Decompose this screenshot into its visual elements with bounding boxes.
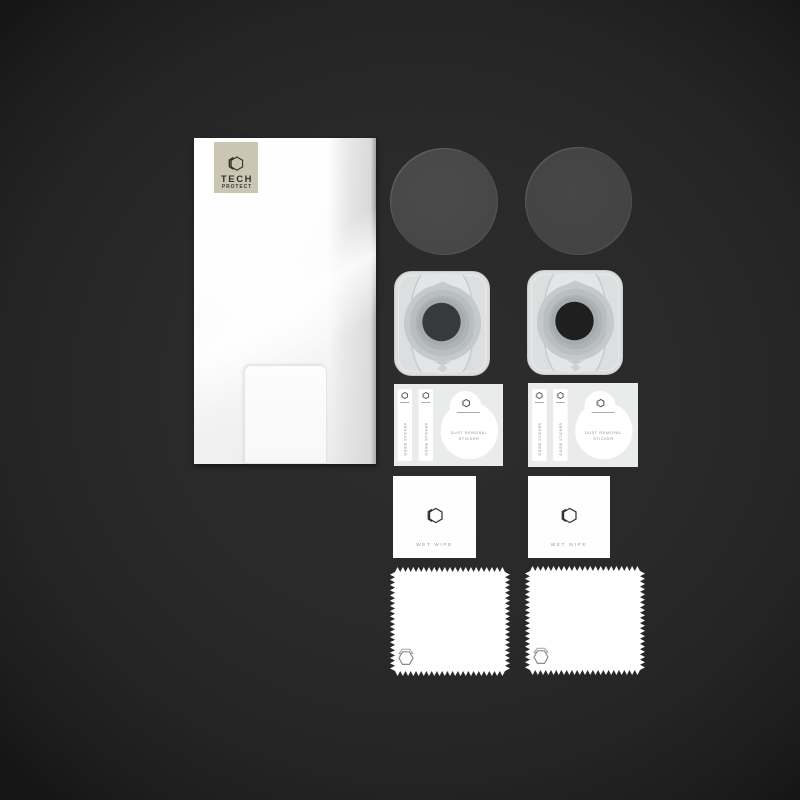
svg-text:GUIDE STICKER: GUIDE STICKER xyxy=(403,423,407,456)
svg-text:DUST REMOVAL: DUST REMOVAL xyxy=(585,431,622,435)
svg-text:STICKER: STICKER xyxy=(459,437,480,441)
svg-text:GUIDE STICKER: GUIDE STICKER xyxy=(538,423,542,456)
svg-text:GUIDE STICKER: GUIDE STICKER xyxy=(425,423,429,456)
svg-text:GUIDE STICKER: GUIDE STICKER xyxy=(559,423,563,456)
svg-text:STICKER: STICKER xyxy=(593,437,614,441)
svg-text:DUST REMOVAL: DUST REMOVAL xyxy=(451,431,488,435)
